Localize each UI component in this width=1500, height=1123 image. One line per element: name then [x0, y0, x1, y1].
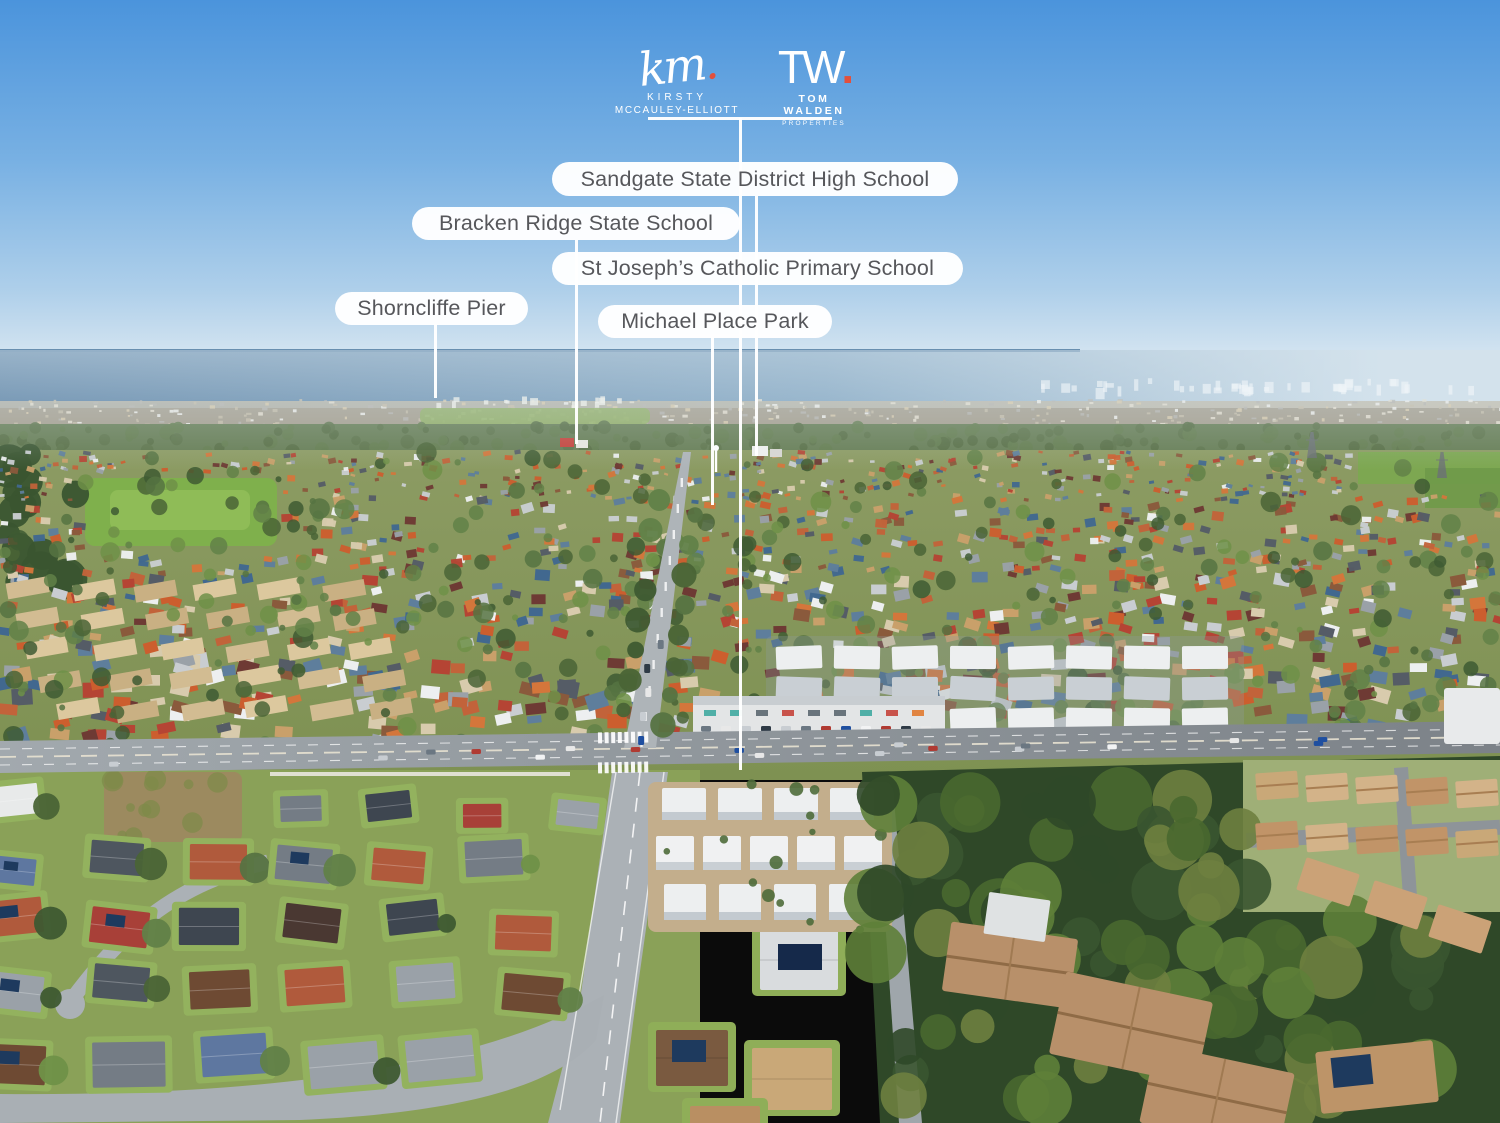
tw-logo: TW. TOM WALDEN PROPERTIES [768, 44, 860, 127]
km-logo-name-first: KIRSTY [608, 92, 746, 103]
leader-line-shorncliffe [434, 324, 437, 398]
km-logo-name-last: MCCAULEY-ELLIOTT [608, 105, 746, 116]
leader-line-michael-park [711, 337, 714, 505]
tw-logo-name: TOM WALDEN [768, 93, 860, 117]
callout-st-josephs-school: St Joseph’s Catholic Primary School [552, 252, 963, 285]
property-leader-line [739, 118, 742, 770]
km-logo: km. KIRSTY MCCAULEY-ELLIOTT [608, 44, 746, 116]
km-logo-script: km. [606, 37, 748, 95]
aerial-marketing-photo: Sandgate State District High School Brac… [0, 0, 1500, 1123]
callout-bracken-ridge-school: Bracken Ridge State School [412, 207, 740, 240]
tw-logo-mark: TW. [768, 44, 860, 90]
tw-logo-subtitle: PROPERTIES [768, 120, 860, 127]
branding-block: km. KIRSTY MCCAULEY-ELLIOTT TW. TOM WALD… [608, 44, 860, 127]
callout-sandgate-high-school: Sandgate State District High School [552, 162, 958, 196]
callout-michael-place-park: Michael Place Park [598, 305, 832, 338]
tw-logo-dot: . [841, 41, 850, 93]
callout-shorncliffe-pier: Shorncliffe Pier [335, 292, 528, 325]
